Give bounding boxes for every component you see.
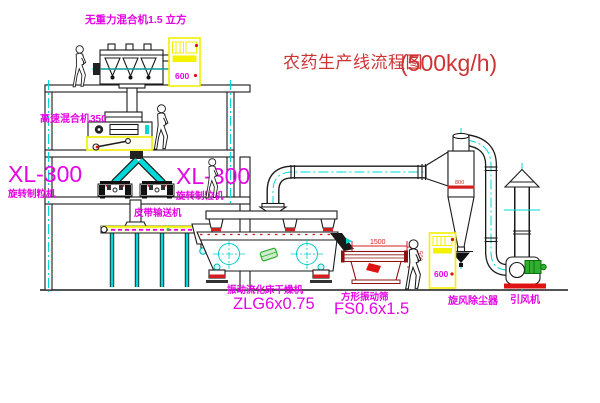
process-flow-diagram: 600 [0, 0, 600, 403]
page-title-capacity: (500kg/h) [400, 50, 497, 76]
fan-base [504, 284, 546, 289]
label-cyclone: 旋风除尘器 [447, 294, 499, 307]
label-granulator-left-name: 旋转制粒机 [7, 188, 56, 200]
control-cabinet-top: 600 [169, 38, 200, 86]
induced-draft-fan [504, 257, 546, 289]
cabinet-top-text: 600 [175, 71, 189, 81]
fluid-bed-dryer [192, 211, 338, 283]
label-sieve-model: FS0.6x1.5 [334, 300, 409, 318]
granulator-left [98, 181, 132, 199]
cad-canvas: 600 [0, 0, 600, 403]
dryer-hood-supports [209, 219, 335, 231]
label-granulator-left-model: XL-300 [8, 161, 82, 187]
label-fan: 引风机 [510, 293, 540, 306]
cyclone-barrel [448, 151, 474, 197]
label-dryer-model: ZLG6x0.75 [233, 295, 315, 313]
cyclone-diameter-text: 800 [455, 180, 464, 186]
granulator-right [140, 181, 174, 199]
person-second-floor [154, 105, 168, 149]
control-cabinet-right: 600 [430, 233, 456, 288]
sieve-dimension-length: 1500 [352, 239, 407, 251]
mixer-discharge-duct [127, 88, 137, 113]
sieve-length-text: 1500 [370, 239, 386, 246]
label-belt-conveyor: 皮带输送机 [133, 207, 182, 219]
person-roof [73, 46, 86, 87]
dryer-hood [206, 211, 337, 219]
dryer-exhaust-pipe [260, 165, 430, 213]
label-gravity-mixer: 无重力混合机1.5 立方 [84, 13, 187, 26]
stack-cap [505, 170, 539, 188]
label-high-speed-mixer: 高速混合机350 [40, 112, 107, 125]
cabinet-right-text: 600 [434, 269, 448, 279]
fan-motor [525, 261, 541, 274]
belt-conveyor [101, 226, 207, 287]
